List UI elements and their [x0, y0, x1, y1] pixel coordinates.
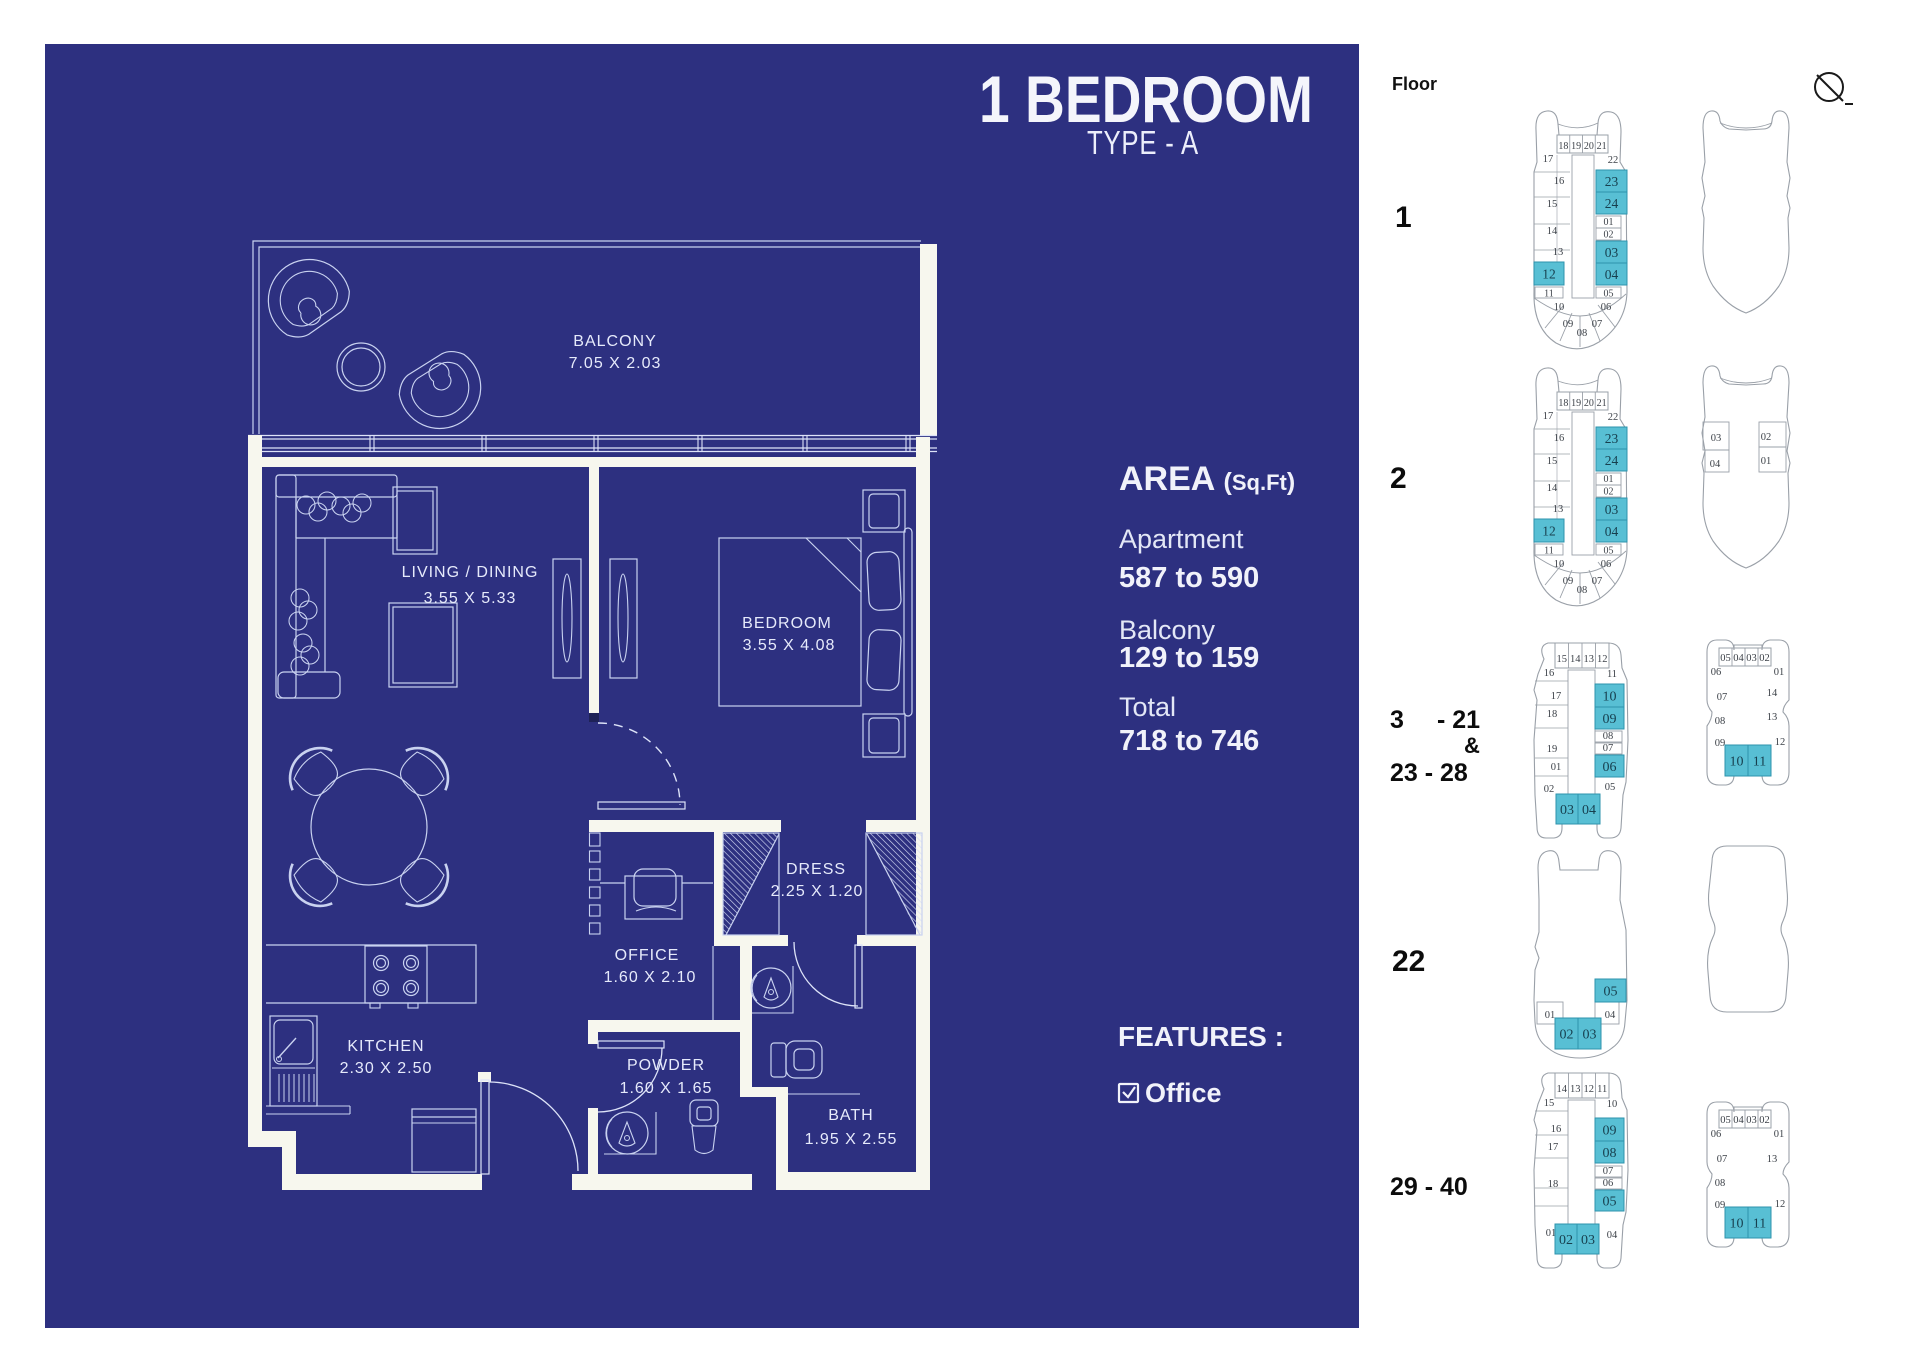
svg-text:2.30 X 2.50: 2.30 X 2.50 — [340, 1060, 433, 1077]
svg-text:12: 12 — [1583, 1084, 1594, 1095]
svg-text:20: 20 — [1584, 141, 1594, 152]
svg-text:02: 02 — [1604, 230, 1614, 241]
svg-text:02: 02 — [1761, 432, 1772, 443]
svg-text:18: 18 — [1547, 709, 1558, 720]
svg-text:22: 22 — [1392, 945, 1425, 978]
svg-text:05: 05 — [1720, 653, 1731, 664]
svg-text:04: 04 — [1605, 1010, 1616, 1021]
svg-text:FEATURES :: FEATURES : — [1118, 1021, 1284, 1052]
svg-text:03: 03 — [1746, 1115, 1757, 1126]
svg-text:11: 11 — [1544, 546, 1554, 557]
svg-text:02: 02 — [1560, 1028, 1574, 1043]
svg-text:07: 07 — [1603, 743, 1614, 754]
svg-text:08: 08 — [1577, 328, 1588, 339]
svg-text:- 21: - 21 — [1437, 706, 1480, 734]
svg-text:03: 03 — [1581, 1233, 1595, 1248]
svg-text:11: 11 — [1753, 1217, 1766, 1232]
svg-text:3.55 X 4.08: 3.55 X 4.08 — [743, 637, 836, 654]
svg-text:3.55 X 5.33: 3.55 X 5.33 — [424, 590, 517, 607]
svg-text:17: 17 — [1543, 411, 1554, 422]
svg-text:11: 11 — [1753, 755, 1766, 770]
svg-text:2.25 X 1.20: 2.25 X 1.20 — [771, 883, 864, 900]
svg-text:22: 22 — [1608, 412, 1619, 423]
svg-text:04: 04 — [1582, 803, 1596, 818]
svg-text:11: 11 — [1607, 669, 1617, 680]
svg-text:13: 13 — [1767, 712, 1778, 723]
svg-text:587 to 590: 587 to 590 — [1119, 562, 1259, 594]
svg-text:05: 05 — [1604, 289, 1614, 300]
svg-text:Total: Total — [1119, 692, 1176, 722]
svg-text:10: 10 — [1603, 690, 1617, 705]
svg-text:06: 06 — [1711, 1129, 1722, 1140]
svg-text:03: 03 — [1746, 653, 1757, 664]
svg-text:06: 06 — [1711, 667, 1722, 678]
svg-text:07: 07 — [1592, 576, 1603, 587]
svg-text:21: 21 — [1597, 398, 1607, 409]
svg-text:Floor: Floor — [1392, 74, 1437, 94]
svg-text:01: 01 — [1774, 667, 1785, 678]
svg-text:07: 07 — [1717, 1154, 1728, 1165]
svg-text:DRESS: DRESS — [786, 861, 846, 878]
svg-text:01: 01 — [1774, 1129, 1785, 1140]
svg-text:15: 15 — [1544, 1098, 1555, 1109]
svg-text:1.95 X 2.55: 1.95 X 2.55 — [805, 1131, 898, 1148]
svg-text:129 to 159: 129 to 159 — [1119, 642, 1259, 674]
svg-text:06: 06 — [1601, 302, 1612, 313]
svg-text:12: 12 — [1775, 737, 1786, 748]
svg-text:01: 01 — [1551, 762, 1562, 773]
svg-text:29 - 40: 29 - 40 — [1390, 1173, 1468, 1201]
svg-text:12: 12 — [1542, 266, 1556, 281]
svg-text:09: 09 — [1563, 576, 1574, 587]
svg-text:OFFICE: OFFICE — [615, 947, 680, 964]
svg-text:08: 08 — [1603, 731, 1614, 742]
svg-text:10: 10 — [1554, 302, 1565, 313]
svg-text:23: 23 — [1605, 174, 1619, 189]
svg-text:718 to 746: 718 to 746 — [1119, 725, 1259, 757]
svg-text:16: 16 — [1554, 433, 1565, 444]
svg-text:08: 08 — [1603, 1146, 1617, 1161]
svg-text:LIVING / DINING: LIVING / DINING — [402, 564, 539, 581]
svg-text:03: 03 — [1711, 433, 1722, 444]
svg-text:24: 24 — [1605, 453, 1619, 468]
svg-text:08: 08 — [1715, 1178, 1726, 1189]
svg-text:07: 07 — [1592, 319, 1603, 330]
svg-text:05: 05 — [1604, 985, 1618, 1000]
svg-text:13: 13 — [1553, 247, 1564, 258]
svg-text:11: 11 — [1597, 1084, 1607, 1095]
svg-text:08: 08 — [1715, 716, 1726, 727]
svg-text:21: 21 — [1597, 141, 1607, 152]
svg-text:01: 01 — [1545, 1010, 1556, 1021]
svg-text:13: 13 — [1583, 654, 1594, 665]
svg-text:05: 05 — [1604, 546, 1614, 557]
svg-text:11: 11 — [1544, 289, 1554, 300]
svg-text:04: 04 — [1605, 267, 1619, 282]
svg-text:10: 10 — [1730, 755, 1744, 770]
svg-text:04: 04 — [1733, 653, 1744, 664]
svg-text:19: 19 — [1547, 744, 1558, 755]
svg-text:10: 10 — [1730, 1217, 1744, 1232]
svg-text:20: 20 — [1584, 398, 1594, 409]
svg-text:17: 17 — [1551, 691, 1562, 702]
svg-text:10: 10 — [1554, 559, 1565, 570]
svg-text:1: 1 — [1395, 201, 1412, 234]
svg-text:13: 13 — [1553, 504, 1564, 515]
svg-text:05: 05 — [1720, 1115, 1731, 1126]
svg-text:12: 12 — [1597, 654, 1608, 665]
svg-text:18: 18 — [1548, 1179, 1559, 1190]
svg-text:04: 04 — [1710, 459, 1721, 470]
svg-text:1.60 X 2.10: 1.60 X 2.10 — [604, 969, 697, 986]
svg-text:09: 09 — [1603, 1124, 1617, 1139]
svg-text:18: 18 — [1558, 398, 1568, 409]
svg-text:06: 06 — [1601, 559, 1612, 570]
svg-text:14: 14 — [1767, 688, 1778, 699]
svg-text:03: 03 — [1560, 803, 1574, 818]
svg-text:19: 19 — [1571, 398, 1581, 409]
svg-text:18: 18 — [1558, 141, 1568, 152]
svg-text:01: 01 — [1604, 474, 1614, 485]
svg-text:15: 15 — [1547, 199, 1558, 210]
svg-text:7.05 X 2.03: 7.05 X 2.03 — [569, 355, 662, 372]
svg-text:Office: Office — [1145, 1078, 1222, 1108]
svg-text:Apartment: Apartment — [1119, 524, 1244, 554]
svg-text:09: 09 — [1715, 738, 1726, 749]
svg-text:06: 06 — [1603, 760, 1617, 775]
svg-text:14: 14 — [1547, 226, 1558, 237]
svg-text:03: 03 — [1583, 1028, 1597, 1043]
svg-text:09: 09 — [1603, 712, 1617, 727]
svg-text:04: 04 — [1733, 1115, 1744, 1126]
svg-text:&: & — [1464, 733, 1480, 758]
svg-text:14: 14 — [1547, 483, 1558, 494]
svg-text:14: 14 — [1556, 1084, 1567, 1095]
svg-text:09: 09 — [1715, 1200, 1726, 1211]
svg-text:10: 10 — [1607, 1099, 1618, 1110]
svg-text:24: 24 — [1605, 196, 1619, 211]
svg-text:04: 04 — [1605, 524, 1619, 539]
svg-text:07: 07 — [1603, 1166, 1614, 1177]
svg-text:03: 03 — [1605, 502, 1619, 517]
svg-text:15: 15 — [1556, 654, 1567, 665]
svg-text:02: 02 — [1604, 487, 1614, 498]
svg-text:16: 16 — [1554, 176, 1565, 187]
svg-text:15: 15 — [1547, 456, 1558, 467]
svg-text:04: 04 — [1607, 1230, 1618, 1241]
svg-text:2: 2 — [1390, 462, 1407, 495]
svg-text:KITCHEN: KITCHEN — [347, 1038, 424, 1055]
svg-text:01: 01 — [1604, 217, 1614, 228]
svg-text:BEDROOM: BEDROOM — [742, 615, 832, 632]
svg-text:Balcony: Balcony — [1119, 615, 1216, 645]
svg-text:14: 14 — [1570, 654, 1581, 665]
svg-text:02: 02 — [1559, 1233, 1573, 1248]
svg-text:17: 17 — [1548, 1142, 1559, 1153]
svg-text:TYPE - A: TYPE - A — [1087, 124, 1199, 161]
svg-text:22: 22 — [1608, 155, 1619, 166]
svg-text:08: 08 — [1577, 585, 1588, 596]
svg-text:16: 16 — [1544, 668, 1555, 679]
svg-text:12: 12 — [1775, 1199, 1786, 1210]
svg-text:16: 16 — [1551, 1124, 1562, 1135]
svg-text:02: 02 — [1759, 1115, 1770, 1126]
svg-text:1.60 X 1.65: 1.60 X 1.65 — [620, 1080, 713, 1097]
svg-text:13: 13 — [1570, 1084, 1581, 1095]
svg-text:02: 02 — [1544, 784, 1555, 795]
svg-text:09: 09 — [1563, 319, 1574, 330]
svg-text:23: 23 — [1605, 431, 1619, 446]
svg-text:01: 01 — [1761, 456, 1772, 467]
svg-text:07: 07 — [1717, 692, 1728, 703]
svg-text:BATH: BATH — [828, 1107, 873, 1124]
svg-text:05: 05 — [1603, 1195, 1617, 1210]
svg-text:POWDER: POWDER — [627, 1057, 705, 1074]
svg-text:17: 17 — [1543, 154, 1554, 165]
svg-text:02: 02 — [1759, 653, 1770, 664]
svg-text:12: 12 — [1542, 523, 1556, 538]
svg-text:05: 05 — [1605, 782, 1616, 793]
svg-text:23 - 28: 23 - 28 — [1390, 759, 1468, 787]
svg-text:06: 06 — [1603, 1178, 1614, 1189]
svg-text:19: 19 — [1571, 141, 1581, 152]
svg-text:BALCONY: BALCONY — [573, 333, 656, 350]
svg-text:13: 13 — [1767, 1154, 1778, 1165]
svg-text:3: 3 — [1390, 706, 1404, 734]
svg-text:03: 03 — [1605, 245, 1619, 260]
